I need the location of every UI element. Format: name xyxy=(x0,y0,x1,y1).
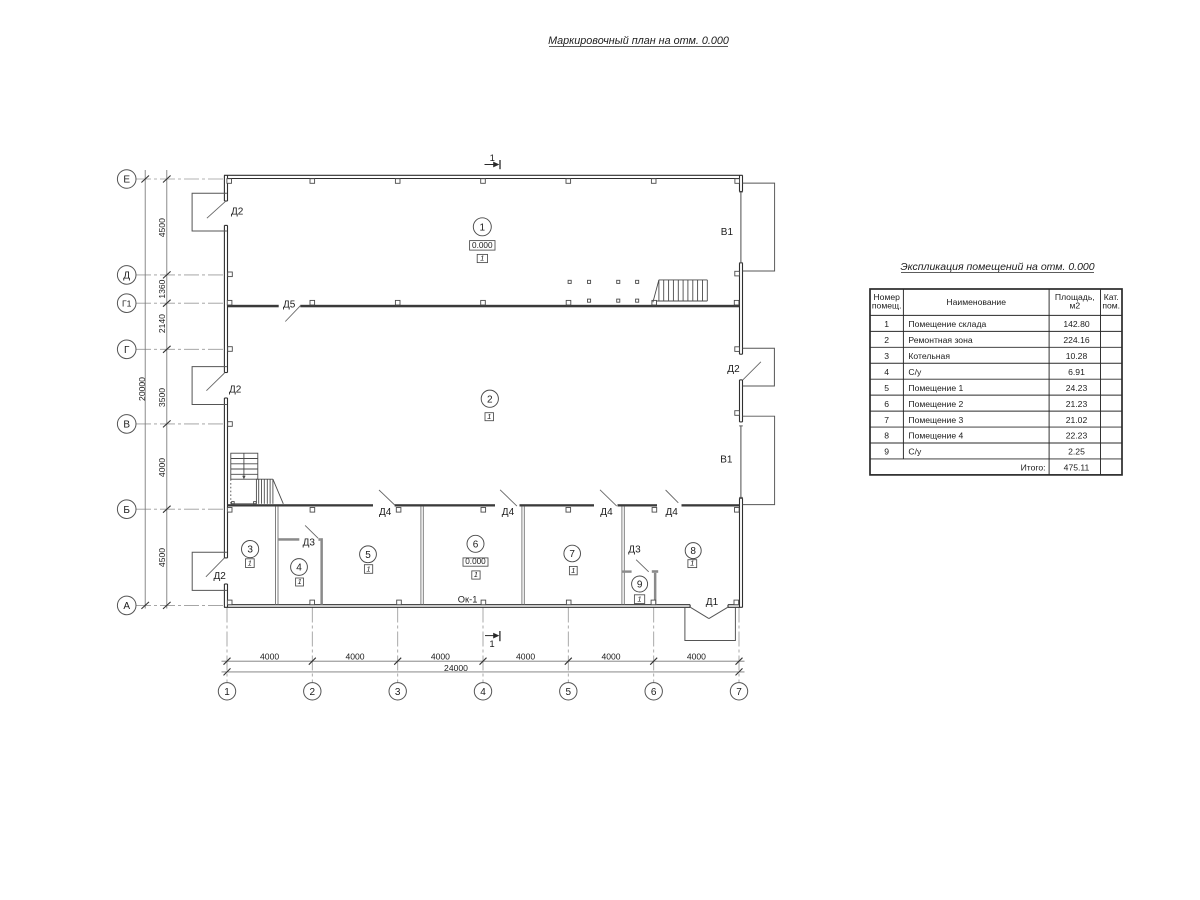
svg-text:Ремонтная зона: Ремонтная зона xyxy=(908,335,972,345)
svg-text:2.25: 2.25 xyxy=(1068,447,1085,457)
svg-text:Д4: Д4 xyxy=(666,507,679,518)
svg-text:9: 9 xyxy=(884,447,889,457)
svg-text:5: 5 xyxy=(884,383,889,393)
svg-text:8: 8 xyxy=(690,546,696,557)
svg-text:Наименование: Наименование xyxy=(946,297,1006,307)
svg-text:4000: 4000 xyxy=(601,652,620,662)
svg-text:3: 3 xyxy=(884,351,889,361)
svg-text:Д3: Д3 xyxy=(628,544,641,555)
svg-text:Г: Г xyxy=(124,345,130,356)
svg-text:Д2: Д2 xyxy=(229,384,242,395)
svg-text:8: 8 xyxy=(884,431,889,441)
svg-text:Д2: Д2 xyxy=(727,364,740,375)
svg-text:2140: 2140 xyxy=(157,314,167,333)
svg-text:Ок-1: Ок-1 xyxy=(458,595,478,605)
svg-text:24.23: 24.23 xyxy=(1066,383,1088,393)
svg-text:6: 6 xyxy=(651,687,657,698)
svg-text:21.23: 21.23 xyxy=(1066,399,1088,409)
svg-text:5: 5 xyxy=(365,550,371,561)
svg-text:Помещение 2: Помещение 2 xyxy=(908,399,963,409)
svg-text:В1: В1 xyxy=(721,227,734,238)
svg-text:4500: 4500 xyxy=(157,218,167,237)
svg-text:142.80: 142.80 xyxy=(1063,319,1090,329)
svg-text:1: 1 xyxy=(884,319,889,329)
svg-text:Д2: Д2 xyxy=(231,206,244,217)
svg-text:7: 7 xyxy=(736,687,742,698)
svg-text:4: 4 xyxy=(480,687,486,698)
svg-text:1: 1 xyxy=(366,564,370,573)
svg-text:1360: 1360 xyxy=(157,279,167,298)
svg-text:21.02: 21.02 xyxy=(1066,415,1088,425)
svg-text:4500: 4500 xyxy=(157,548,167,567)
svg-text:6.91: 6.91 xyxy=(1068,367,1085,377)
svg-text:5: 5 xyxy=(566,687,572,698)
svg-text:В1: В1 xyxy=(720,454,733,465)
svg-text:Итого:: Итого: xyxy=(1021,463,1046,473)
svg-text:24000: 24000 xyxy=(444,663,468,673)
svg-text:Б: Б xyxy=(123,505,130,516)
svg-text:2: 2 xyxy=(310,687,316,698)
svg-text:1: 1 xyxy=(690,559,694,568)
svg-text:Д: Д xyxy=(123,271,130,282)
svg-text:4000: 4000 xyxy=(260,652,279,662)
svg-text:Котельная: Котельная xyxy=(908,351,950,361)
svg-text:4000: 4000 xyxy=(516,652,535,662)
svg-text:Помещение 1: Помещение 1 xyxy=(908,383,963,393)
svg-text:6: 6 xyxy=(884,399,889,409)
svg-text:1: 1 xyxy=(248,559,252,568)
svg-text:4000: 4000 xyxy=(431,652,450,662)
svg-text:Г1: Г1 xyxy=(122,298,132,308)
svg-text:2: 2 xyxy=(487,394,493,405)
svg-text:Д5: Д5 xyxy=(283,299,296,310)
svg-text:4000: 4000 xyxy=(687,652,706,662)
svg-text:Д4: Д4 xyxy=(379,507,392,518)
svg-text:Помещение 4: Помещение 4 xyxy=(908,431,963,441)
svg-text:7: 7 xyxy=(884,415,889,425)
svg-text:1: 1 xyxy=(297,577,301,586)
svg-text:1: 1 xyxy=(480,222,486,233)
svg-text:1: 1 xyxy=(480,254,484,263)
svg-text:Помещение склада: Помещение склада xyxy=(908,319,986,329)
svg-text:0.000: 0.000 xyxy=(472,241,493,250)
svg-text:1: 1 xyxy=(489,639,494,650)
svg-text:Д4: Д4 xyxy=(502,507,515,518)
svg-text:20000: 20000 xyxy=(137,377,147,401)
svg-text:6: 6 xyxy=(473,539,479,550)
svg-text:3: 3 xyxy=(247,545,253,556)
svg-text:1: 1 xyxy=(637,595,641,604)
svg-text:пом.: пом. xyxy=(1102,300,1120,310)
svg-text:С/у: С/у xyxy=(908,447,922,457)
svg-text:4: 4 xyxy=(884,367,889,377)
svg-text:9: 9 xyxy=(637,580,643,591)
svg-text:1: 1 xyxy=(224,687,230,698)
svg-text:2: 2 xyxy=(884,335,889,345)
svg-text:м2: м2 xyxy=(1069,300,1080,310)
svg-text:1: 1 xyxy=(487,412,491,421)
svg-text:3: 3 xyxy=(395,687,401,698)
svg-text:помещ.: помещ. xyxy=(872,300,902,310)
svg-text:1: 1 xyxy=(474,570,478,579)
svg-text:Д2: Д2 xyxy=(214,571,227,582)
svg-text:4: 4 xyxy=(296,563,302,574)
svg-text:Д3: Д3 xyxy=(303,537,316,548)
svg-text:Помещение 3: Помещение 3 xyxy=(908,415,963,425)
svg-text:А: А xyxy=(123,601,130,612)
svg-text:С/у: С/у xyxy=(908,367,922,377)
svg-text:1: 1 xyxy=(490,153,495,164)
svg-text:Д4: Д4 xyxy=(600,507,613,518)
svg-text:Маркировочный план на отм. 0.0: Маркировочный план на отм. 0.000 xyxy=(548,35,729,47)
svg-text:Д1: Д1 xyxy=(706,597,719,608)
svg-text:10.28: 10.28 xyxy=(1066,351,1088,361)
svg-text:4000: 4000 xyxy=(345,652,364,662)
svg-text:Экспликация помещений на отм.: Экспликация помещений на отм. 0.000 xyxy=(900,261,1094,273)
svg-text:3500: 3500 xyxy=(157,388,167,407)
svg-text:Е: Е xyxy=(123,175,130,186)
svg-text:4000: 4000 xyxy=(157,458,167,477)
svg-text:475.11: 475.11 xyxy=(1064,463,1090,473)
svg-text:В: В xyxy=(123,420,130,431)
svg-text:224.16: 224.16 xyxy=(1063,335,1090,345)
svg-text:1: 1 xyxy=(571,566,575,575)
svg-text:22.23: 22.23 xyxy=(1066,431,1088,441)
svg-text:0.000: 0.000 xyxy=(465,557,486,566)
svg-text:7: 7 xyxy=(569,549,575,560)
